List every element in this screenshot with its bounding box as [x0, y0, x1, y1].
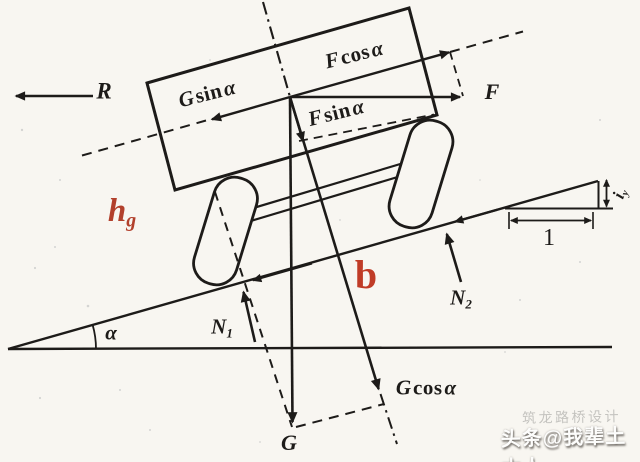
rear-wheel: [384, 115, 458, 233]
label-R: R: [96, 80, 111, 103]
vector-Fsin: [290, 97, 303, 141]
label-alpha: α: [105, 323, 117, 344]
vector-N2: [447, 234, 461, 282]
label-hg: hg: [108, 195, 136, 231]
label-N2: N2: [450, 288, 472, 311]
ground-baseline: [8, 347, 612, 349]
label-G: G: [281, 432, 297, 454]
slope-reaction-arrow-rear: [455, 210, 497, 222]
label-Gcos: Gcosα: [396, 378, 456, 399]
slope-reaction-arrow-front: [253, 264, 312, 281]
vector-G: [290, 97, 293, 422]
slope-force-diagram: R Gsinα Fcosα Fsinα F hg b α N1 N2 G Gco…: [0, 0, 640, 462]
g-tip-parallelogram-dashed: [296, 404, 384, 427]
watermark-text: 头条@我辈土木人: [500, 419, 640, 462]
slope-parallel-ext-left-dashed: [82, 121, 206, 156]
front-wheel: [188, 172, 262, 290]
gcos-extension-dash-dot: [381, 394, 398, 444]
front-wheel-centerline-dashed: [215, 192, 292, 427]
label-run-1: 1: [543, 226, 555, 250]
f-decomposition-dashed: [450, 52, 463, 96]
slope-parallel-ext-right-dashed: [450, 32, 523, 53]
slope-angle-arc: [93, 325, 96, 349]
label-N1: N1: [211, 317, 233, 340]
label-F: F: [485, 81, 500, 103]
label-b: b: [355, 255, 377, 295]
